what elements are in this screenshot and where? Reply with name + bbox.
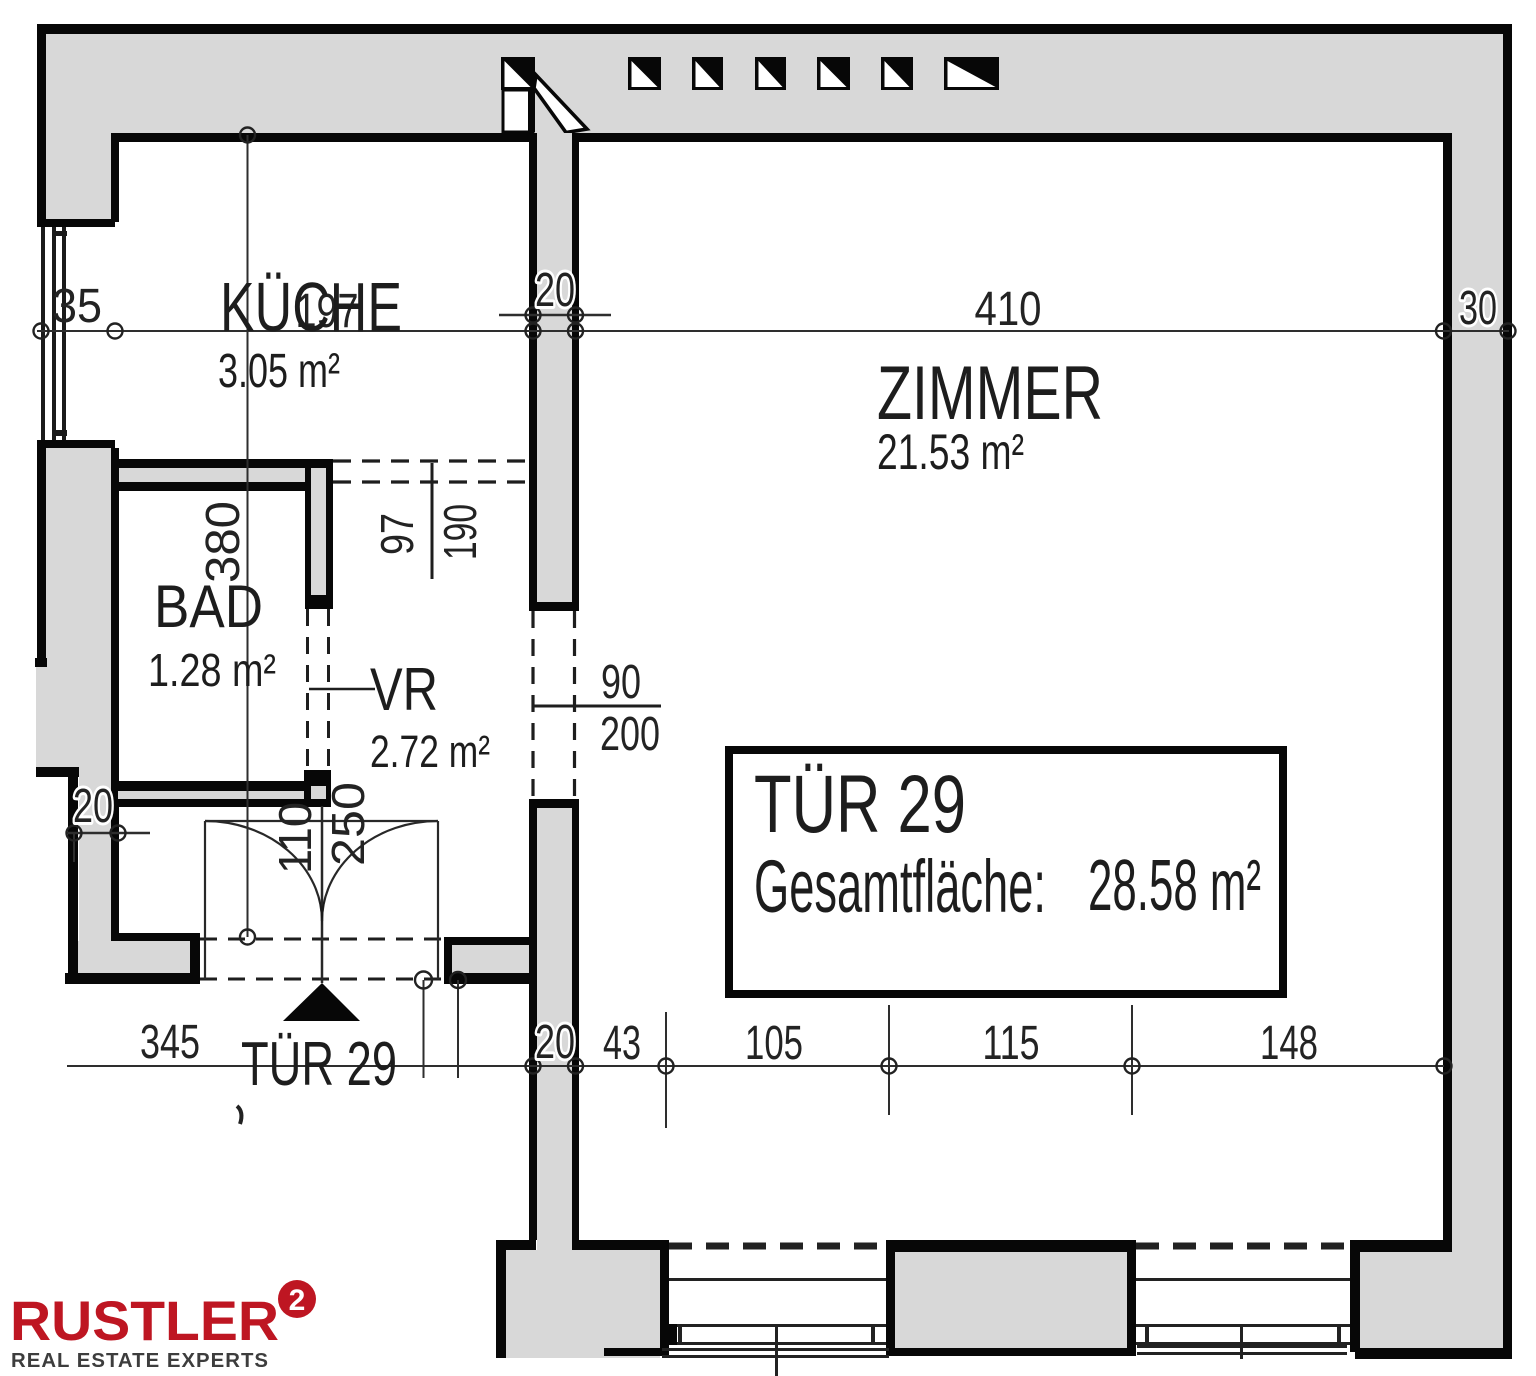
svg-text:250: 250	[322, 782, 374, 866]
svg-text:20: 20	[535, 264, 575, 317]
svg-text:VR: VR	[370, 656, 438, 723]
svg-text:90: 90	[601, 656, 641, 709]
svg-text:REAL ESTATE EXPERTS: REAL ESTATE EXPERTS	[11, 1350, 269, 1372]
svg-text:200: 200	[600, 708, 660, 761]
svg-text:Gesamtfläche:: Gesamtfläche:	[754, 845, 1046, 928]
svg-text:35: 35	[52, 280, 102, 333]
svg-text:345: 345	[140, 1016, 200, 1069]
svg-text:2: 2	[289, 1284, 306, 1317]
svg-text:43: 43	[603, 1017, 641, 1070]
svg-text:190: 190	[434, 504, 486, 560]
svg-text:110: 110	[269, 802, 321, 874]
svg-text:3.05 m²: 3.05 m²	[218, 345, 340, 398]
svg-text:20: 20	[73, 780, 113, 833]
svg-text:20: 20	[535, 1016, 575, 1069]
svg-text:148: 148	[1260, 1017, 1318, 1070]
svg-text:30: 30	[1459, 282, 1497, 335]
svg-text:TÜR 29: TÜR 29	[241, 1030, 397, 1099]
svg-text:97: 97	[371, 513, 423, 555]
svg-text:1.28 m²: 1.28 m²	[148, 644, 276, 696]
svg-text:28.58 m²: 28.58 m²	[1088, 846, 1261, 926]
svg-text:BAD: BAD	[154, 573, 263, 640]
svg-text:KÜCHE: KÜCHE	[220, 268, 402, 346]
svg-text:105: 105	[745, 1017, 803, 1070]
svg-text:21.53 m²: 21.53 m²	[877, 424, 1024, 480]
svg-text:RUSTLER: RUSTLER	[10, 1289, 279, 1352]
svg-text:380: 380	[197, 501, 250, 583]
svg-text:TÜR 29: TÜR 29	[754, 759, 966, 850]
svg-text:410: 410	[975, 283, 1042, 336]
svg-text:2.72 m²: 2.72 m²	[370, 726, 490, 777]
svg-text:115: 115	[983, 1017, 1040, 1070]
